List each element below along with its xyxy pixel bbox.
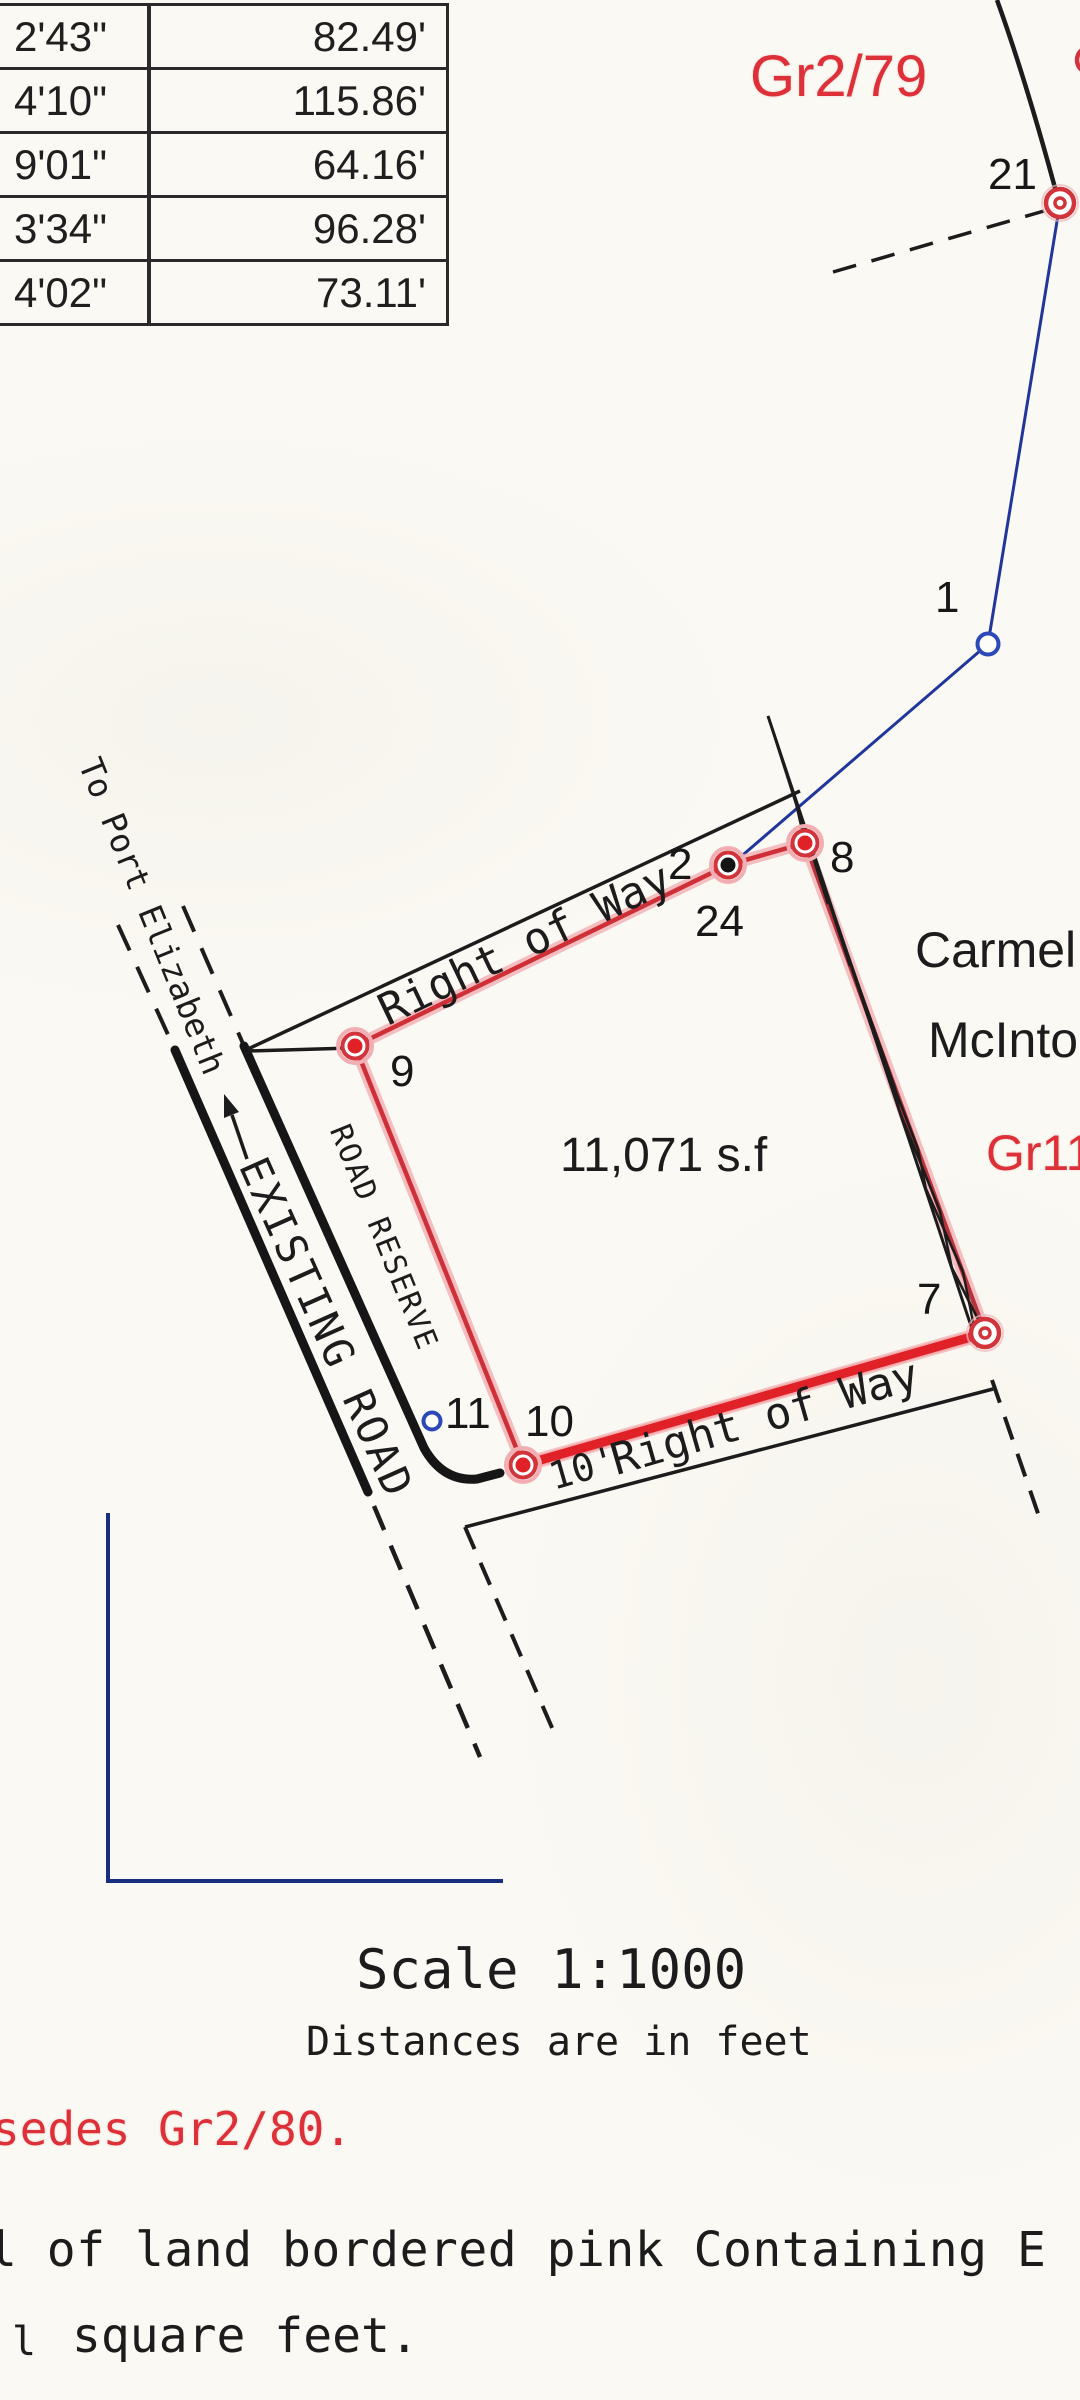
- point-label-7: 7: [917, 1278, 941, 1322]
- distance-cell: 73.11': [151, 262, 446, 323]
- table-row: 4'02" 73.11': [0, 262, 446, 323]
- description-line1: l of land bordered pink Containing E: [0, 2226, 1046, 2274]
- bearing-cell: 2'43": [0, 6, 151, 67]
- point-label-8: 8: [830, 836, 854, 880]
- bearing-cell: 4'02": [0, 262, 151, 323]
- distance-cell: 64.16': [151, 134, 446, 195]
- bearing-cell: 3'34": [0, 198, 151, 259]
- scale-label: Scale 1:1000: [356, 1943, 746, 1997]
- point-1-marker: [978, 634, 999, 655]
- point-9-marker: [338, 1029, 372, 1063]
- road-direction-arrow-shaft: [232, 1115, 247, 1159]
- point-7-marker: [967, 1315, 1003, 1351]
- dashed-line-below-7: [992, 1380, 1042, 1525]
- point-10-marker: [506, 1448, 540, 1482]
- point-11-marker: [424, 1413, 441, 1430]
- point-2-24-marker: [711, 848, 745, 882]
- table-row: 9'01" 64.16': [0, 134, 446, 198]
- table-row: 2'43" 82.49': [0, 6, 446, 70]
- traverse-line: [730, 203, 1060, 866]
- bearing-distance-table: 2'43" 82.49' 4'10" 115.86' 9'01" 64.16' …: [0, 3, 449, 326]
- description-line2-prefix: l: [12, 2322, 36, 2362]
- distance-cell: 96.28': [151, 198, 446, 259]
- parcel-area-label: 11,071 s.f: [560, 1132, 767, 1180]
- plan-ref-gr11: Gr11: [986, 1128, 1080, 1178]
- row-bottom-dashed-drop: [465, 1527, 553, 1730]
- point-label-11: 11: [445, 1392, 491, 1436]
- units-note: Distances are in feet: [306, 2022, 812, 2062]
- scanned-survey-plan: 2'43" 82.49' 4'10" 115.86' 9'01" 64.16' …: [0, 0, 1080, 2400]
- bearing-cell: 4'10": [0, 70, 151, 131]
- point-label-2: 2: [668, 843, 692, 887]
- point-label-1: 1: [935, 576, 959, 620]
- point-8-marker: [788, 826, 822, 860]
- distance-cell: 82.49': [151, 6, 446, 67]
- point-label-9: 9: [390, 1050, 414, 1094]
- plan-ref-gr2-79: Gr2/79: [750, 48, 927, 106]
- bearing-cell: 9'01": [0, 134, 151, 195]
- point-label-10: 10: [525, 1400, 574, 1444]
- road-direction-arrow-head: [224, 1094, 239, 1118]
- adjoining-owner-line2: McInto: [928, 1015, 1078, 1065]
- supersedes-note: sedes Gr2/80.: [0, 2106, 352, 2152]
- table-row: 4'10" 115.86': [0, 70, 446, 134]
- description-line2: square feet.: [72, 2312, 419, 2360]
- road-edge-left-dashed-lower: [374, 1506, 480, 1757]
- point-label-21: 21: [988, 153, 1037, 197]
- point-21-marker: [1042, 185, 1078, 221]
- dashed-boundary-21: [833, 211, 1044, 272]
- distance-cell: 115.86': [151, 70, 446, 131]
- adjoining-owner-line1: Carmel: [915, 925, 1076, 975]
- table-row: 3'34" 96.28': [0, 198, 446, 262]
- point-label-24: 24: [695, 900, 744, 944]
